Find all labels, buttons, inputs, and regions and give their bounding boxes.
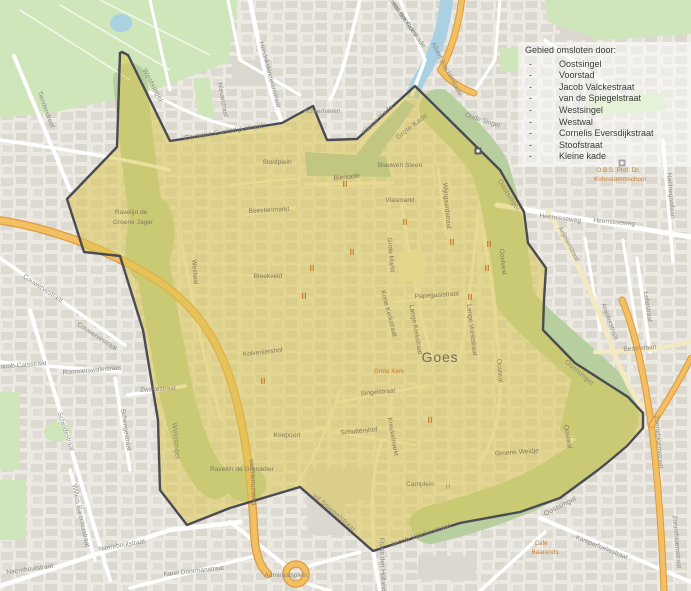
legend-item-label: Stoofstraat	[559, 140, 603, 152]
legend-item: -Stoofstraat	[520, 140, 691, 152]
landmark-icon	[475, 148, 482, 155]
legend-item: -Voorstad	[520, 70, 691, 82]
legend-item: -Cornelis Eversdijkstraat	[520, 128, 691, 140]
legend-item-label: Voorstad	[559, 70, 595, 82]
legend-item: -Westsingel	[520, 105, 691, 117]
legend-item-label: Kleine kade	[559, 151, 606, 163]
legend-item: -Westwal	[520, 117, 691, 129]
legend-item: -Oostsingel	[520, 59, 691, 71]
pond	[110, 14, 132, 32]
legend-item-label: Oostsingel	[559, 59, 602, 71]
map-label: Ravelijn de	[115, 209, 148, 216]
map-label: Stoofplein	[262, 159, 292, 166]
legend-bullet: -	[529, 151, 559, 163]
map-label: Bleekveld	[254, 273, 283, 280]
legend-bullet: -	[529, 117, 559, 129]
map-label: Grote Kerk	[374, 368, 405, 375]
map-label: Kohnstammschool	[594, 176, 646, 183]
legend-title: Gebied omsloten door:	[520, 45, 691, 57]
legend-bullet: -	[529, 70, 559, 82]
legend-item-label: Jacob Valckestraat	[559, 82, 634, 94]
legend-item-label: van de Spiegelstraat	[559, 93, 641, 105]
map-label: Goes	[422, 349, 459, 365]
map-label: Ravelijn de Grenadier	[210, 466, 275, 473]
legend-item-label: Westsingel	[559, 105, 603, 117]
map-label: O.B.S. Prof. Dr.	[596, 167, 640, 174]
legend-bullet: -	[529, 93, 559, 105]
map-label: Groene Jager	[113, 219, 154, 226]
map-label: Blauwen Steen	[378, 162, 423, 169]
map-label: Camplein	[406, 481, 434, 488]
legend-item-label: Cornelis Eversdijkstraat	[559, 128, 654, 140]
legend-bullet: -	[529, 82, 559, 94]
legend-bullet: -	[529, 128, 559, 140]
map-label: H	[446, 484, 451, 491]
legend-bullet: -	[529, 59, 559, 71]
legend-item: -van de Spiegelstraat	[520, 93, 691, 105]
map-label: Vlasmarkt	[385, 197, 414, 204]
map-label: Koepoort	[274, 432, 301, 439]
legend-bullet: -	[529, 140, 559, 152]
legend-item: -Kleine kade	[520, 151, 691, 163]
map-label: Baarends	[532, 549, 559, 556]
legend-bullet: -	[529, 105, 559, 117]
legend-item: -Jacob Valckestraat	[520, 82, 691, 94]
map-label: Achterhaven	[303, 108, 340, 115]
map-label: Café	[534, 540, 548, 547]
legend-items: -Oostsingel-Voorstad-Jacob Valckestraat-…	[520, 59, 691, 163]
map-label: Admiraalsplein	[264, 572, 308, 579]
legend-item-label: Westwal	[559, 117, 593, 129]
map-canvas: TiendendreefCouwervestraatCouwervestraat…	[0, 0, 691, 591]
legend-panel: Gebied omsloten door: -Oostsingel-Voorst…	[518, 42, 691, 167]
